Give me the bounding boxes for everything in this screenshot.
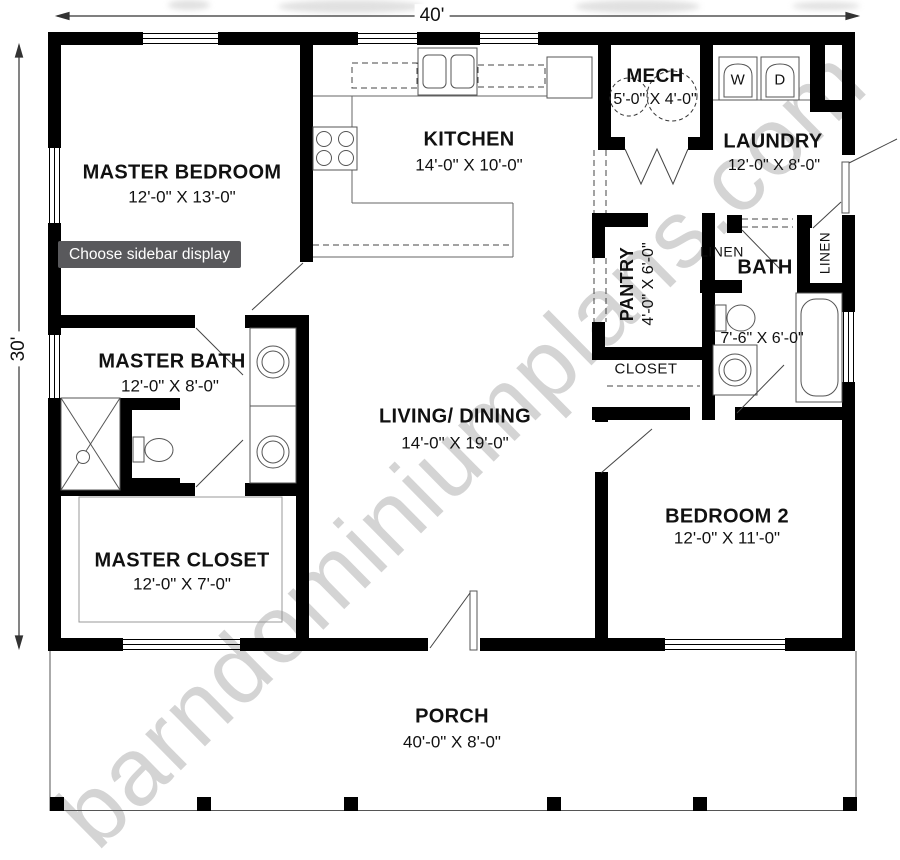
refrigerator-icon	[547, 57, 592, 98]
room-label-kitchen: KITCHEN	[424, 128, 515, 153]
front-door	[430, 593, 470, 648]
window	[844, 312, 854, 382]
dryer-label: D	[774, 72, 785, 91]
room-label-master-bath: MASTER BATH	[98, 350, 245, 375]
window	[123, 640, 240, 650]
room-dims-bedroom-2: 12'-0" X 11'-0"	[674, 527, 780, 548]
room-dims-master-bedroom: 12'-0" X 13'-0"	[128, 186, 235, 207]
master-closet-door	[196, 440, 243, 487]
room-label-bath: BATH	[737, 256, 792, 281]
vanity-sink-icon	[713, 345, 757, 395]
room-label-mech: MECH	[626, 65, 683, 89]
overall-width-dimension: 40'	[415, 4, 450, 28]
room-label-closet: CLOSET	[614, 361, 677, 380]
tooltip: Choose sidebar display	[58, 241, 241, 268]
floor-plan: barndominiumplans.com	[0, 0, 900, 860]
upper-cabinet-dashed	[352, 63, 417, 88]
linen-right-door	[813, 202, 841, 228]
double-vanity-sink-icon	[250, 328, 296, 483]
room-dims-mech: 5'-0" X 4'-0"	[613, 90, 696, 110]
pantry-dims: 4'-0" X 6'-0"	[638, 242, 658, 325]
room-label-linen-right: LINEN	[818, 232, 835, 274]
room-dims-porch: 40'-0" X 8'-0"	[403, 731, 501, 752]
room-dims-master-closet: 12'-0" X 7'-0"	[133, 573, 231, 594]
pantry-name: PANTRY	[616, 242, 639, 325]
toilet-icon	[715, 305, 755, 331]
bedroom2-door	[601, 429, 652, 473]
room-dims-kitchen: 14'-0" X 10'-0"	[415, 154, 522, 175]
room-dims-bath: 7'-6" X 6'-0"	[720, 329, 803, 349]
master-bedroom-door	[252, 263, 303, 310]
laundry-exterior-door	[849, 139, 897, 163]
room-label-laundry: LAUNDRY	[723, 130, 822, 155]
room-label-porch: PORCH	[415, 705, 489, 730]
laundry-exterior-door-leaf	[842, 162, 849, 213]
room-dims-master-bath: 12'-0" X 8'-0"	[121, 375, 219, 396]
window	[358, 34, 417, 44]
room-dims-living-dining: 14'-0" X 19'-0"	[401, 432, 508, 453]
porch-posts	[50, 797, 857, 811]
overall-height-dimension: 30'	[7, 332, 31, 367]
room-label-living-dining: LIVING/ DINING	[379, 405, 531, 430]
window	[665, 640, 785, 650]
room-label-bedroom-2: BEDROOM 2	[665, 505, 789, 530]
toilet-icon	[133, 437, 173, 462]
front-door-leaf	[470, 591, 477, 650]
cooktop-icon	[313, 127, 357, 170]
window	[143, 34, 218, 44]
washer-label: W	[731, 72, 746, 91]
shower-icon	[61, 398, 120, 490]
window	[50, 148, 60, 223]
room-label-master-bedroom: MASTER BEDROOM	[83, 161, 282, 186]
kitchen-sink-icon	[418, 48, 477, 95]
window	[480, 34, 538, 44]
window	[50, 335, 60, 398]
mech-bifold-door	[625, 149, 688, 184]
room-label-pantry: PANTRY 4'-0" X 6'-0"	[616, 242, 659, 325]
room-dims-laundry: 12'-0" X 8'-0"	[728, 156, 820, 176]
upper-cabinet-dashed	[478, 65, 545, 87]
room-label-master-closet: MASTER CLOSET	[94, 549, 269, 574]
